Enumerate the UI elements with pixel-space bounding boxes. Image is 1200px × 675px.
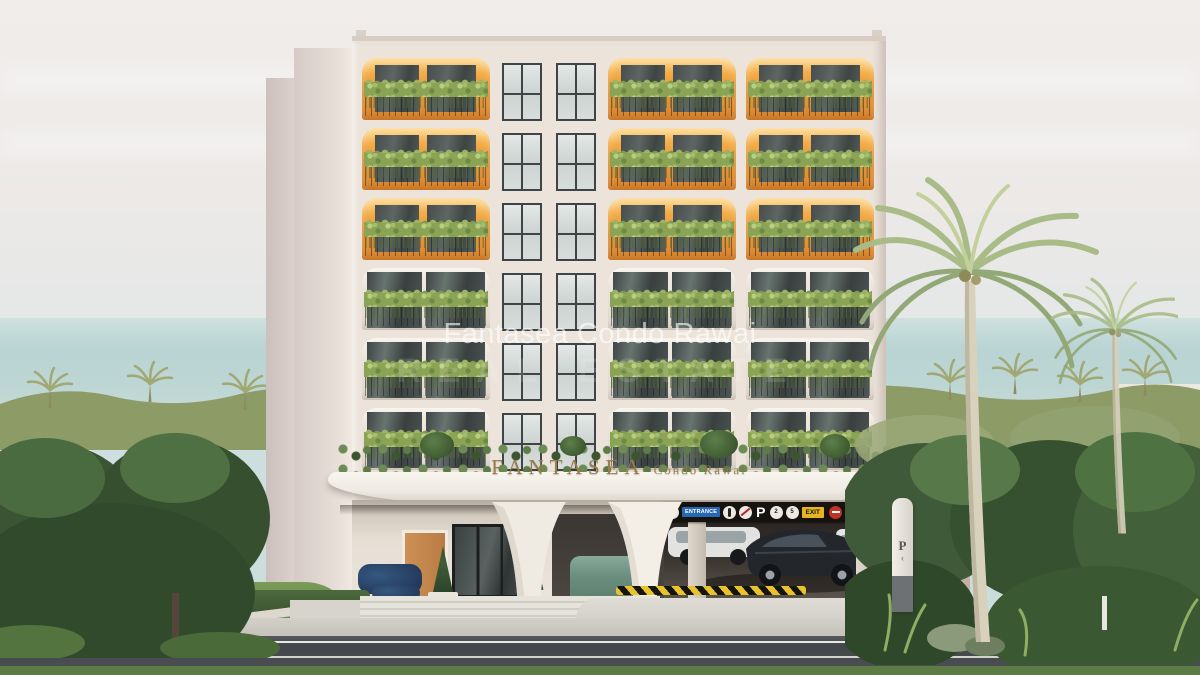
canopy-suffix-text: Condo Rawai (654, 462, 747, 477)
stairwell-window (556, 203, 596, 261)
balcony-planter (364, 82, 488, 97)
grass-strip (0, 666, 1200, 675)
roof-garden-shrub (560, 436, 586, 456)
pylon-p-letter: P (892, 538, 913, 554)
balcony-planter (364, 292, 488, 307)
stairwell-window (556, 133, 596, 191)
balcony-planter (748, 82, 872, 97)
balcony-planter (364, 222, 488, 237)
stairwell-window (502, 63, 542, 121)
hedge-left (0, 408, 280, 658)
canopy-brand-sign: FANTASEACondo Rawai (352, 455, 886, 480)
balcony-bay (746, 58, 874, 120)
floor-row (352, 198, 886, 268)
watermark-title: Fantasea Condo Rawai (0, 318, 1200, 351)
speed-bump (616, 586, 806, 595)
balcony-planter (610, 152, 734, 167)
exit-badge: EXIT (802, 507, 824, 518)
balcony-planter (610, 82, 734, 97)
balcony-bay (362, 58, 490, 120)
stairwell-column (500, 128, 598, 198)
floor-row (352, 58, 886, 128)
stairwell-window (556, 63, 596, 121)
balcony-planter (610, 292, 734, 307)
no-horn-icon (739, 506, 752, 519)
pylon-base (892, 576, 913, 612)
balcony-bay (608, 58, 736, 120)
bay-number-badge: 2 (770, 506, 783, 519)
architectural-render-scene: FANTASEACondo Rawai 10 ENTRANCE P 2 5 EX… (0, 0, 1200, 675)
bay-number-badge: 5 (786, 506, 799, 519)
balcony-planter (748, 152, 872, 167)
canopy-brand-text: FANTASEA (491, 455, 645, 479)
balcony-bay (608, 128, 736, 190)
no-entry-icon (829, 506, 842, 519)
pylon-arrow: ‹ (892, 554, 913, 562)
watermark-subtitle: REAL ESTATE (0, 352, 1200, 391)
floor-row (352, 128, 886, 198)
balcony-planter (364, 152, 488, 167)
stairwell-window (502, 133, 542, 191)
stairwell-column (500, 58, 598, 128)
balcony-bay (362, 128, 490, 190)
balcony-bay (362, 198, 490, 260)
floors (352, 58, 886, 478)
pedestrian-icon (723, 506, 736, 519)
parking-p-symbol: P (756, 504, 765, 520)
balcony-planter (610, 222, 734, 237)
roof-garden-shrub (700, 430, 738, 458)
stairwell-window (502, 203, 542, 261)
bollard (1102, 596, 1107, 630)
stairwell-column (500, 198, 598, 268)
balcony-bay (608, 198, 736, 260)
